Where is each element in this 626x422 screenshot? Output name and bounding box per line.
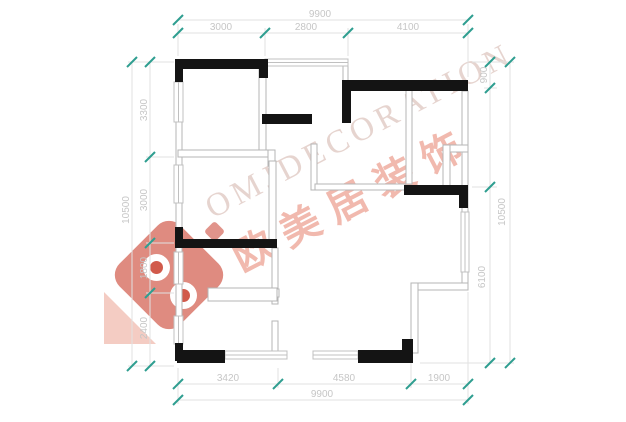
dim-label: 2400 xyxy=(139,316,150,339)
dim-label: 1800 xyxy=(139,256,150,279)
wall-segment xyxy=(342,80,468,91)
thin-wall xyxy=(259,66,266,151)
dim-label: 2800 xyxy=(295,22,318,33)
thin-wall xyxy=(272,321,278,352)
wall-segment xyxy=(262,114,312,124)
wall-segment xyxy=(259,59,268,78)
dim-label: 3420 xyxy=(217,373,240,384)
thin-wall xyxy=(311,144,317,190)
thin-wall xyxy=(315,184,405,190)
wall-segment xyxy=(404,185,468,195)
floor-plan-canvas: OMJDECORATION 欧美居装饰 99003000280041003420… xyxy=(0,0,626,422)
dim-label: 3000 xyxy=(210,22,233,33)
dim-label: 4100 xyxy=(397,22,420,33)
dim-label: 3000 xyxy=(139,188,150,211)
wall-segment xyxy=(402,339,413,363)
dim-label: 3300 xyxy=(139,98,150,121)
dim-label: 900 xyxy=(479,66,490,83)
thin-wall xyxy=(178,150,275,157)
wall-segment xyxy=(177,350,225,363)
thin-wall xyxy=(269,161,276,241)
dim-label: 1900 xyxy=(428,373,451,384)
wall-segment xyxy=(459,185,468,208)
wall-segment xyxy=(342,80,351,123)
dim-label: 10500 xyxy=(121,196,132,224)
dim-label: 9900 xyxy=(311,389,334,400)
thin-wall xyxy=(411,283,468,290)
dim-label: 10500 xyxy=(497,198,508,226)
wall-segment xyxy=(175,239,277,248)
dim-label: 6100 xyxy=(477,265,488,288)
dim-label: 9900 xyxy=(309,9,332,20)
floor-plan-svg: 9900300028004100342045801900990010500330… xyxy=(0,0,626,422)
wall-segment xyxy=(175,59,183,82)
wall-segment xyxy=(175,59,268,69)
thin-wall xyxy=(443,145,450,187)
thin-wall xyxy=(208,288,277,301)
dim-label: 4580 xyxy=(333,373,356,384)
thin-wall xyxy=(406,88,412,184)
